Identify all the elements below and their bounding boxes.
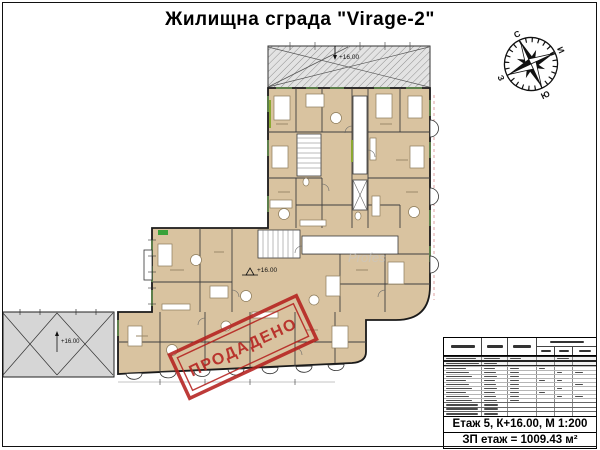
- header-cell: [508, 338, 537, 355]
- header-group-cell: [537, 338, 596, 355]
- roof-elevation-label: +16.00: [61, 339, 80, 345]
- header-cell: [482, 338, 508, 355]
- compass-south-label: Ю: [539, 88, 551, 101]
- table-header: [444, 338, 596, 356]
- table-row: [444, 366, 596, 370]
- table-row: [444, 390, 596, 394]
- table-row: [444, 394, 596, 398]
- table-row: [444, 402, 596, 407]
- gable-elevation-label: +16.00: [339, 54, 359, 61]
- table-row: [444, 407, 596, 412]
- compass-main-points: [498, 31, 564, 97]
- compass-rose: С И Ю З: [481, 14, 582, 116]
- adjacent-roof-plan: +16.00: [3, 309, 114, 377]
- apartments-table: [443, 337, 597, 417]
- table-row: [444, 378, 596, 382]
- mid-elevation-label: +16.00: [257, 267, 277, 274]
- compass-east-label: И: [555, 45, 567, 55]
- compass-west-label: З: [495, 73, 506, 82]
- table-row: [444, 398, 596, 402]
- floor-scale-caption: Етаж 5, К+16.00, М 1:200: [443, 416, 597, 433]
- drawing-sheet: Жилищна сграда "Virage-2" +16.00: [0, 0, 600, 450]
- table-row: [444, 386, 596, 390]
- table-row: [444, 411, 596, 416]
- watermark-text: Profes: [348, 250, 386, 265]
- table-row: [444, 382, 596, 386]
- header-cell: [444, 338, 482, 355]
- title-block: Етаж 5, К+16.00, М 1:200 ЗП етаж = 1009.…: [443, 337, 597, 449]
- table-row: [444, 370, 596, 374]
- table-row: [444, 374, 596, 378]
- floor-area-caption: ЗП етаж = 1009.43 м²: [443, 432, 597, 449]
- table-body: [444, 356, 596, 416]
- roof-gable-hatch: +16.00: [268, 42, 430, 88]
- compass-north-label: С: [512, 28, 522, 40]
